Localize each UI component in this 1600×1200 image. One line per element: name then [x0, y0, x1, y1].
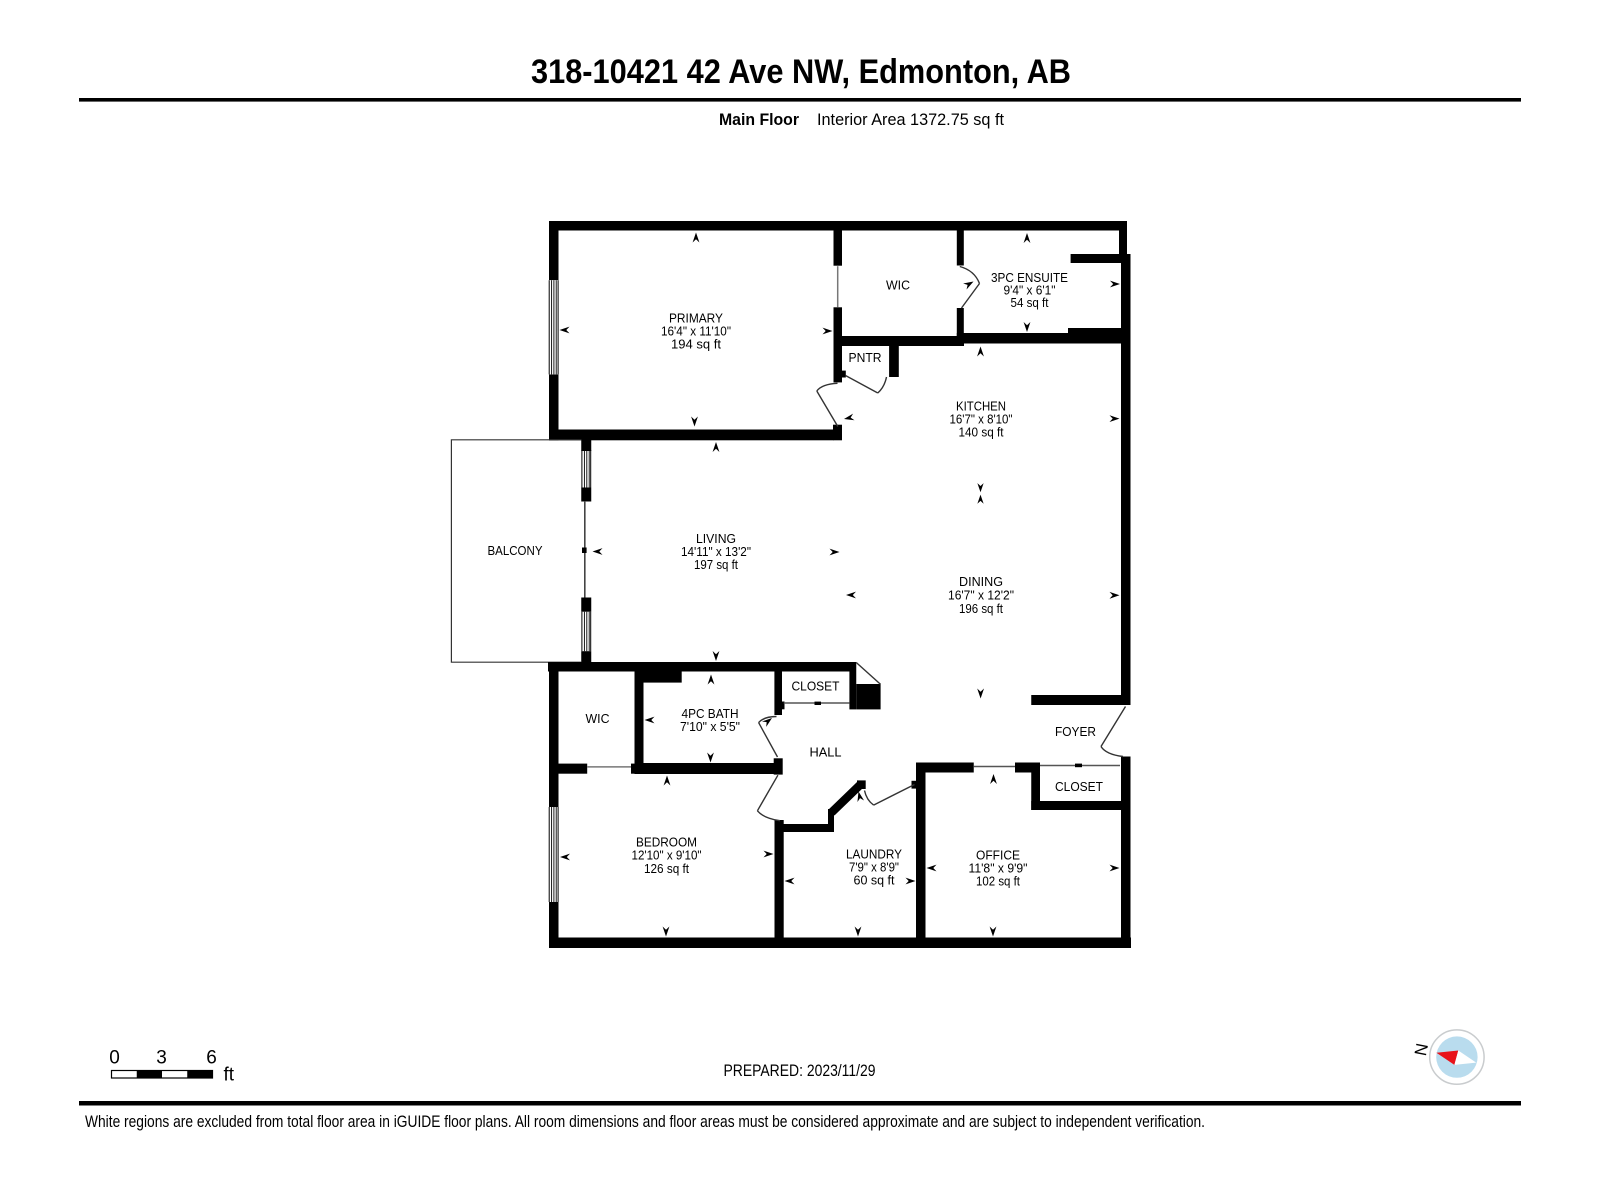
svg-text:CLOSET: CLOSET: [1055, 779, 1103, 794]
svg-text:6: 6: [206, 1048, 217, 1069]
svg-text:Main Floor: Main Floor: [719, 111, 800, 129]
svg-text:197 sq ft: 197 sq ft: [694, 557, 738, 572]
svg-text:CLOSET: CLOSET: [792, 679, 840, 694]
svg-text:BALCONY: BALCONY: [488, 543, 543, 558]
svg-text:3: 3: [156, 1048, 167, 1069]
svg-text:60 sq ft: 60 sq ft: [854, 873, 895, 888]
svg-text:194 sq ft: 194 sq ft: [671, 337, 721, 352]
svg-text:140 sq ft: 140 sq ft: [959, 425, 1004, 440]
svg-text:126 sq ft: 126 sq ft: [644, 861, 689, 876]
svg-text:54 sq ft: 54 sq ft: [1011, 295, 1049, 310]
svg-text:WIC: WIC: [586, 711, 610, 726]
svg-text:Interior Area 1372.75 sq ft: Interior Area 1372.75 sq ft: [817, 111, 1004, 129]
svg-text:196 sq ft: 196 sq ft: [959, 601, 1003, 616]
svg-text:PREPARED: 2023/11/29: PREPARED: 2023/11/29: [724, 1061, 876, 1080]
svg-text:White regions are excluded fro: White regions are excluded from total fl…: [85, 1112, 1205, 1131]
svg-text:PNTR: PNTR: [849, 350, 882, 365]
svg-text:WIC: WIC: [886, 278, 910, 293]
svg-text:FOYER: FOYER: [1055, 724, 1096, 739]
svg-text:0: 0: [109, 1048, 120, 1069]
svg-text:ft: ft: [224, 1065, 235, 1086]
svg-text:318-10421 42 Ave NW, Edmonton,: 318-10421 42 Ave NW, Edmonton, AB: [531, 53, 1071, 91]
svg-text:102 sq ft: 102 sq ft: [976, 874, 1020, 889]
svg-text:HALL: HALL: [810, 745, 842, 760]
svg-text:7'10" x 5'5": 7'10" x 5'5": [680, 719, 740, 734]
